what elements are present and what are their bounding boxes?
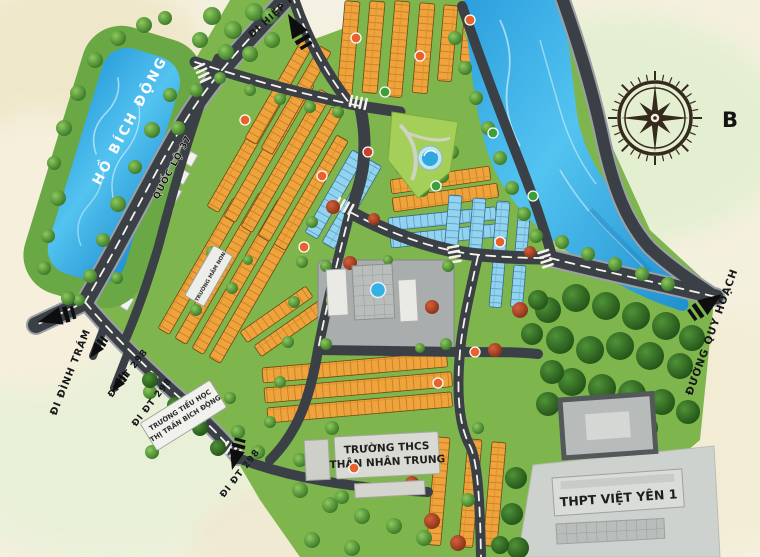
forest-tree-icon [491,536,509,554]
tree-icon [332,106,344,118]
tree-icon [448,31,462,45]
tree-icon [264,32,280,48]
tree-icon [325,421,339,435]
tree-icon [218,44,234,60]
tree-icon [344,540,360,556]
tree-icon [73,294,85,306]
forest-tree-icon [501,503,523,525]
tree-icon [306,216,318,228]
tree-icon [440,338,452,350]
red-tree-icon [512,302,528,318]
tree-icon [469,91,483,105]
forest-tree-icon [210,440,226,456]
tree-icon [70,85,86,101]
forest-tree-icon [536,392,560,416]
tree-icon [50,190,66,206]
tree-icon [288,296,300,308]
tree-icon [292,482,308,498]
forest-tree-icon [562,284,590,312]
pool-icon [371,283,386,298]
tree-icon [110,30,126,46]
tree-icon [304,532,320,548]
lot-badge-icon [528,191,538,201]
tree-icon [231,425,245,439]
forest-tree-icon [636,342,664,370]
tree-icon [189,83,203,97]
forest-tree-icon [142,372,158,388]
master-plan-map: TRƯỜNG MẦM NON TRƯỜNG TIỂU HỌC THỊ TRẤN … [0,0,760,557]
tree-icon [163,88,177,102]
lot-badge-icon [433,378,443,388]
tree-icon [244,84,256,96]
tree-icon [190,304,202,316]
tree-icon [461,493,475,507]
tree-icon [608,257,622,271]
clubhouse-building-east [398,279,418,322]
tree-icon [493,151,507,165]
thpt-courtyard [585,411,631,440]
tree-icon [529,229,543,243]
tree-icon [245,3,263,21]
tree-icon [274,93,286,105]
forest-tree-icon [652,312,680,340]
tree-icon [41,229,55,243]
tree-icon [635,267,649,281]
tree-icon [56,120,72,136]
lot-badge-icon [351,33,361,43]
clubhouse-building-west [326,269,348,316]
tree-icon [136,17,152,33]
tree-icon [505,181,519,195]
tree-icon [282,336,294,348]
red-tree-icon [368,213,380,225]
red-tree-icon [450,535,466,551]
tree-icon [320,338,332,350]
red-tree-icon [326,200,340,214]
lot-badge-icon [380,87,390,97]
tree-icon [335,490,349,504]
lot-badge-icon [240,115,250,125]
forest-tree-icon [622,302,650,330]
tree-icon [87,52,103,68]
forest-tree-icon [606,332,634,360]
forest-tree-icon [576,336,604,364]
tree-icon [144,122,160,138]
tree-icon [128,160,142,174]
forest-tree-icon [521,323,543,345]
tree-icon [224,21,242,39]
site-plan-screenshot: TRƯỜNG MẦM NON TRƯỜNG TIỂU HỌC THỊ TRẤN … [0,0,760,557]
tree-icon [83,269,97,283]
tree-icon [264,416,276,428]
tree-icon [581,247,595,261]
red-tree-icon [424,513,440,529]
lot-badge-icon [495,237,505,247]
lot-badge-icon [299,242,309,252]
tree-icon [96,233,110,247]
forest-tree-icon [540,360,564,384]
tree-icon [47,156,61,170]
tree-icon [192,32,208,48]
tree-icon [386,518,402,534]
tree-icon [304,101,316,113]
tree-icon [242,46,258,62]
red-tree-icon [524,246,536,258]
lot-badge-icon [415,51,425,61]
tree-icon [274,376,286,388]
red-tree-icon [425,300,439,314]
lot-badge-icon [317,171,327,181]
forest-tree-icon [528,290,548,310]
compass-north-label: B [722,108,738,132]
tree-icon [416,530,432,546]
forest-tree-icon [505,467,527,489]
tree-icon [661,277,675,291]
forest-tree-icon [592,292,620,320]
tree-icon [61,291,75,305]
tree-icon [226,282,238,294]
tree-icon [37,261,51,275]
red-tree-icon [488,343,502,357]
tree-icon [203,7,221,25]
lot-badge-icon [465,15,475,25]
tree-icon [354,508,370,524]
tree-icon [110,196,126,212]
tree-icon [111,272,123,284]
tree-icon [296,256,308,268]
tree-icon [472,422,484,434]
tree-icon [224,392,236,404]
forest-tree-icon [546,326,574,354]
tree-icon [555,235,569,249]
lot-badge-icon [349,463,359,473]
lot-badge-icon [431,181,441,191]
tree-icon [214,72,226,84]
road-mid-east-west [318,350,538,354]
tree-icon [171,121,185,135]
forest-tree-icon [676,400,700,424]
lot-badge-icon [488,128,498,138]
tree-icon [517,207,531,221]
lot-badge-icon [363,147,373,157]
tree-icon [458,61,472,75]
tree-icon [243,255,253,265]
tree-icon [158,11,172,25]
tree-icon [442,260,454,272]
tree-icon [415,343,425,353]
lot-badge-icon [470,347,480,357]
